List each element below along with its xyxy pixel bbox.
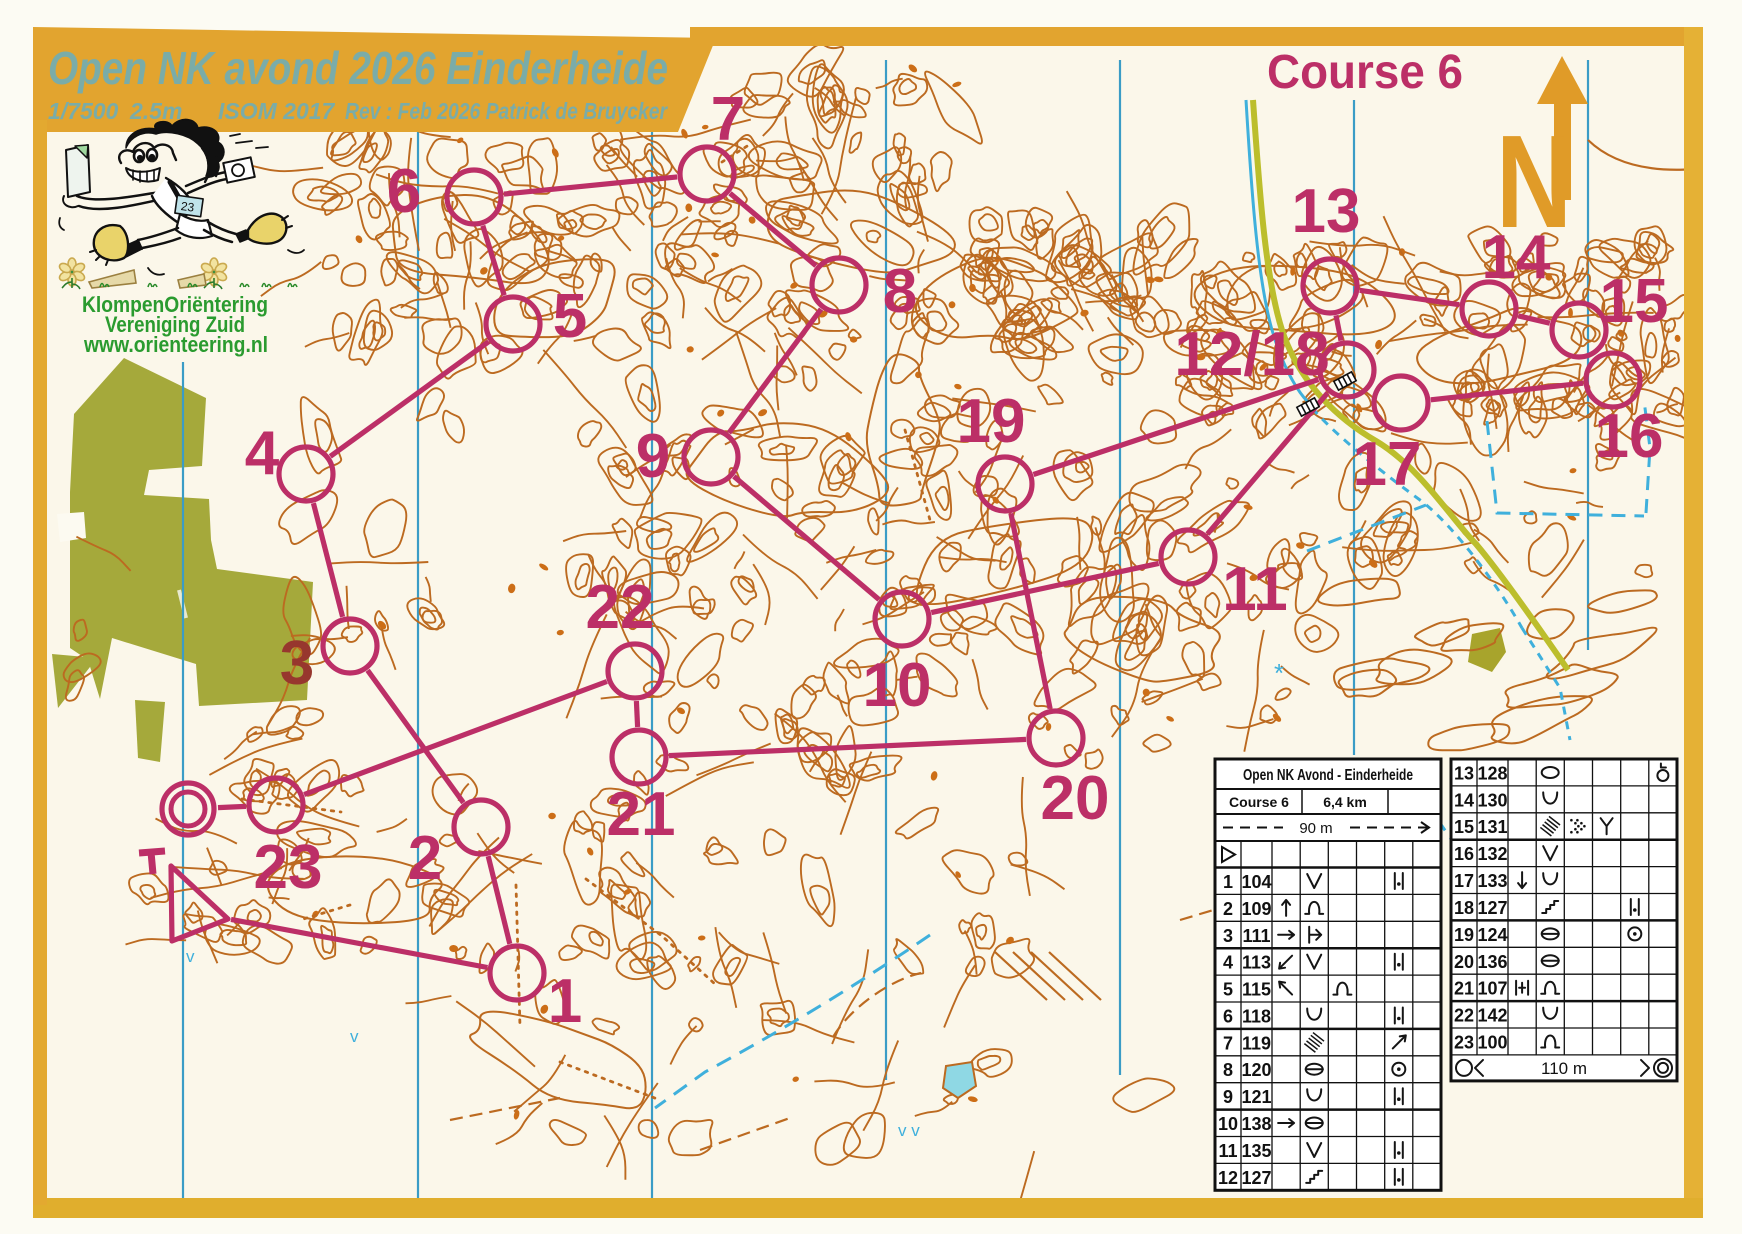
svg-text:15: 15 bbox=[1600, 267, 1669, 336]
svg-text:131: 131 bbox=[1477, 817, 1507, 837]
svg-text:115: 115 bbox=[1242, 980, 1271, 1000]
svg-text:110 m: 110 m bbox=[1541, 1059, 1587, 1078]
svg-text:7: 7 bbox=[711, 85, 745, 154]
svg-text:10: 10 bbox=[1218, 1114, 1238, 1134]
svg-text:127: 127 bbox=[1477, 898, 1507, 918]
svg-text:7: 7 bbox=[1223, 1033, 1233, 1053]
svg-text:124: 124 bbox=[1477, 925, 1507, 945]
svg-text:*: * bbox=[1274, 658, 1284, 688]
svg-text:111: 111 bbox=[1242, 926, 1270, 946]
svg-text:ISOM 2017: ISOM 2017 bbox=[218, 98, 336, 124]
svg-text:90 m: 90 m bbox=[1299, 820, 1332, 837]
svg-text:13: 13 bbox=[1454, 764, 1474, 784]
svg-text:4: 4 bbox=[1223, 953, 1233, 973]
svg-text:13: 13 bbox=[1292, 177, 1361, 246]
svg-text:19: 19 bbox=[1454, 925, 1474, 945]
svg-text:Course 6: Course 6 bbox=[1267, 46, 1463, 99]
svg-text:120: 120 bbox=[1241, 1060, 1271, 1080]
svg-text:2: 2 bbox=[408, 824, 442, 893]
svg-text:5: 5 bbox=[1223, 980, 1233, 1000]
svg-text:11: 11 bbox=[1222, 555, 1288, 624]
svg-text:www.orienteering.nl: www.orienteering.nl bbox=[83, 332, 268, 357]
svg-text:v v: v v bbox=[898, 1121, 920, 1140]
svg-text:5: 5 bbox=[553, 282, 587, 351]
svg-text:v: v bbox=[186, 947, 195, 966]
svg-text:21: 21 bbox=[607, 780, 676, 849]
svg-text:130: 130 bbox=[1477, 790, 1507, 810]
svg-text:9: 9 bbox=[636, 422, 670, 491]
svg-text:N: N bbox=[1496, 108, 1572, 255]
svg-text:12/18: 12/18 bbox=[1174, 320, 1329, 389]
svg-text:9: 9 bbox=[1223, 1087, 1233, 1107]
svg-text:22: 22 bbox=[586, 573, 655, 642]
svg-text:119: 119 bbox=[1242, 1033, 1271, 1053]
svg-text:3: 3 bbox=[1223, 926, 1233, 946]
svg-text:Open NK Avond - Einderheide: Open NK Avond - Einderheide bbox=[1243, 767, 1413, 784]
svg-text:109: 109 bbox=[1241, 899, 1271, 919]
svg-text:10: 10 bbox=[863, 651, 932, 720]
svg-text:18: 18 bbox=[1454, 898, 1474, 918]
svg-text:15: 15 bbox=[1454, 817, 1474, 837]
svg-text:2: 2 bbox=[1223, 899, 1233, 919]
svg-text:19: 19 bbox=[957, 387, 1026, 456]
svg-text:113: 113 bbox=[1242, 953, 1271, 973]
svg-text:17: 17 bbox=[1353, 430, 1422, 499]
svg-text:1/7500: 1/7500 bbox=[48, 98, 119, 124]
svg-text:128: 128 bbox=[1477, 764, 1507, 784]
svg-text:12: 12 bbox=[1218, 1168, 1238, 1188]
svg-text:22: 22 bbox=[1454, 1006, 1474, 1026]
svg-text:6: 6 bbox=[1223, 1007, 1233, 1027]
svg-text:118: 118 bbox=[1242, 1007, 1271, 1027]
svg-text:132: 132 bbox=[1477, 844, 1507, 864]
svg-text:1: 1 bbox=[548, 967, 582, 1036]
svg-text:v: v bbox=[350, 1027, 359, 1046]
svg-text:133: 133 bbox=[1477, 871, 1507, 891]
svg-text:142: 142 bbox=[1477, 1006, 1507, 1026]
svg-text:16: 16 bbox=[1595, 402, 1664, 471]
svg-text:6: 6 bbox=[387, 157, 421, 226]
svg-text:3: 3 bbox=[280, 629, 314, 698]
svg-text:127: 127 bbox=[1241, 1168, 1271, 1188]
svg-text:11: 11 bbox=[1218, 1141, 1237, 1161]
svg-text:138: 138 bbox=[1241, 1114, 1271, 1134]
svg-text:135: 135 bbox=[1241, 1141, 1271, 1161]
svg-text:16: 16 bbox=[1454, 844, 1474, 864]
svg-text:2.5m: 2.5m bbox=[129, 98, 182, 124]
svg-text:8: 8 bbox=[883, 257, 917, 326]
svg-text:104: 104 bbox=[1241, 872, 1271, 892]
svg-text:107: 107 bbox=[1477, 979, 1507, 999]
svg-text:100: 100 bbox=[1477, 1033, 1507, 1053]
svg-text:Open NK avond 2026 Einderheid: Open NK avond 2026 Einderheide bbox=[48, 42, 668, 94]
svg-text:20: 20 bbox=[1454, 952, 1474, 972]
svg-text:20: 20 bbox=[1041, 764, 1110, 833]
svg-text:Rev : Feb 2026 Patrick de Bru: Rev : Feb 2026 Patrick de Bruycker bbox=[345, 98, 668, 124]
svg-text:4: 4 bbox=[245, 419, 280, 488]
svg-text:17: 17 bbox=[1454, 871, 1474, 891]
svg-text:6,4 km: 6,4 km bbox=[1323, 794, 1367, 810]
svg-text:23: 23 bbox=[254, 833, 323, 902]
svg-text:121: 121 bbox=[1241, 1087, 1271, 1107]
svg-text:14: 14 bbox=[1454, 790, 1474, 810]
svg-text:23: 23 bbox=[180, 199, 195, 215]
svg-text:23: 23 bbox=[1454, 1033, 1474, 1053]
svg-text:136: 136 bbox=[1477, 952, 1507, 972]
svg-text:Course 6: Course 6 bbox=[1229, 794, 1289, 810]
svg-text:21: 21 bbox=[1454, 979, 1474, 999]
svg-text:8: 8 bbox=[1223, 1060, 1233, 1080]
svg-text:1: 1 bbox=[1223, 872, 1233, 892]
